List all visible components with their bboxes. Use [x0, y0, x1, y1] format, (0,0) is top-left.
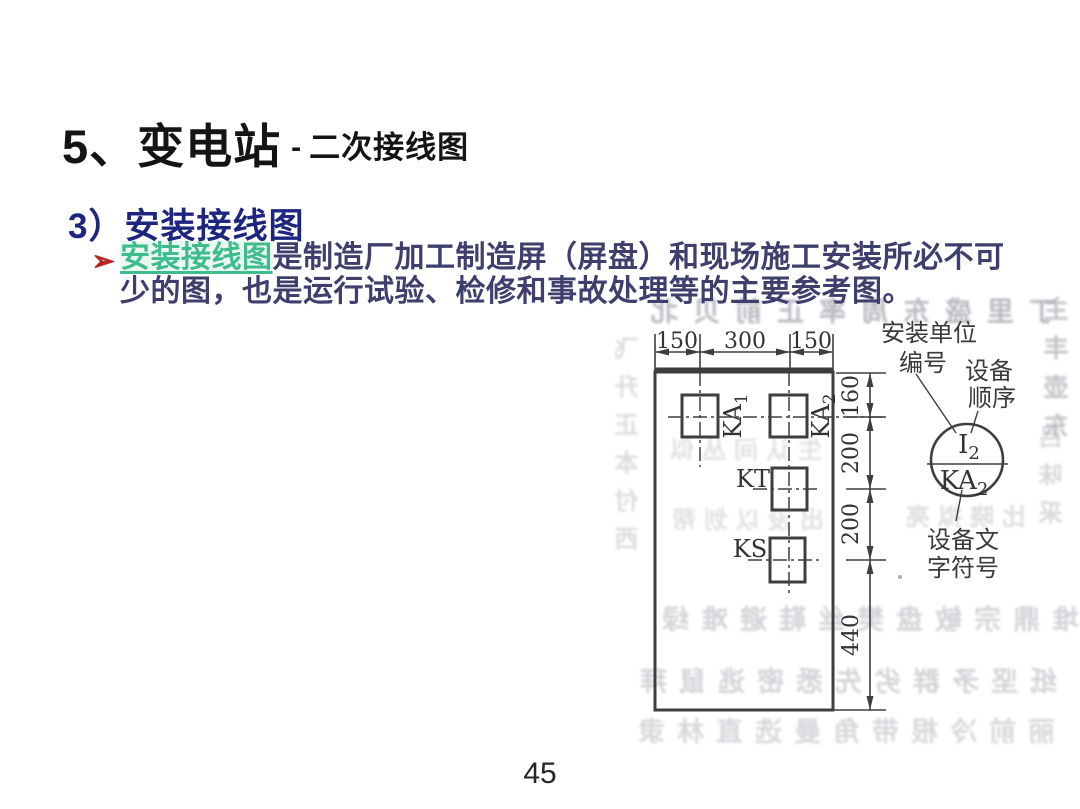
- slide-title-subtitle: 二次接线图: [309, 130, 469, 165]
- side-dimension-chain: 160 200 200 440: [833, 373, 886, 710]
- square-ka1: [682, 395, 718, 437]
- highlight-term: 安装接线图: [120, 241, 273, 274]
- page-number: 45: [523, 757, 556, 791]
- leader-unit-number: [916, 374, 956, 433]
- dim-side-200-upper: 200: [839, 432, 864, 474]
- dim-top-300: 300: [724, 329, 766, 354]
- bleed-through-text: 主丰壶东: [1040, 296, 1076, 452]
- dim-side-200-lower: 200: [839, 503, 864, 545]
- dim-side-440: 440: [839, 614, 864, 656]
- bleed-through-text: 飞升正本付西: [612, 336, 647, 564]
- bullet-line-1-rest: 是制造厂加工制造屏（屏盘）和现场施工安装所必不可: [273, 241, 1005, 274]
- square-ka2: [770, 395, 807, 437]
- dim-top-150-left: 150: [656, 329, 698, 354]
- scan-speck: [898, 575, 902, 579]
- label-ka2: KA2: [807, 393, 840, 438]
- leader-device-code: [956, 490, 962, 521]
- callout-code-line1: 设备文: [927, 527, 999, 554]
- device-symbol-circle: I2 KA2: [927, 424, 1008, 500]
- bullet-paragraph: 安装接线图是制造厂加工制造屏（屏盘）和现场施工安装所必不可 少的图，也是运行试验…: [120, 241, 1005, 309]
- callout-code-line2: 字符号: [927, 555, 999, 582]
- callout-order-line2: 顺序: [968, 385, 1016, 412]
- bleed-through-text: 吕味采: [1036, 424, 1071, 538]
- panel-outline: [655, 372, 833, 710]
- square-ks: [770, 538, 805, 582]
- circle-device-code: KA2: [940, 466, 989, 500]
- bleed-through-text: 堆鼎宗敏盘樊丝鞋避难绿: [650, 598, 1079, 637]
- bleed-through-text: 比晓拟亮: [898, 497, 1026, 532]
- bullet-arrow-icon: ➢: [92, 246, 115, 277]
- slide-title-main: 5、变电站: [62, 120, 281, 173]
- leader-device-order: [971, 411, 978, 433]
- square-kt: [772, 468, 807, 510]
- dim-top-150-right: 150: [790, 329, 832, 354]
- callout-unit-line2: 编号: [899, 350, 947, 377]
- bullet-line-1: 安装接线图是制造厂加工制造屏（屏盘）和现场施工安装所必不可: [120, 241, 1005, 275]
- dim-side-160: 160: [839, 375, 864, 417]
- callout-unit-line1: 安装单位: [881, 320, 977, 347]
- label-ks: KS: [733, 535, 767, 563]
- slide-title: 5、变电站-二次接线图: [62, 108, 469, 177]
- label-kt: KT: [736, 465, 770, 493]
- bullet-line-2: 少的图，也是运行试验、检修和事故处理等的主要参考图。: [120, 275, 1005, 309]
- callout-order-line1: 设备: [965, 358, 1013, 385]
- slide-title-dash: -: [291, 131, 301, 164]
- centerlines: [668, 372, 882, 597]
- bleed-through-text: 纸坚矛群劣先悉密逃鼠拜: [628, 660, 1057, 699]
- label-ka1: KA1: [719, 393, 752, 438]
- top-dimension-chain: 150 300 150: [655, 329, 833, 372]
- bleed-through-text: 出没以划帮: [664, 500, 824, 535]
- circle-unit-number: I2: [958, 430, 980, 464]
- bleed-through-text: 生认间丛似: [662, 430, 822, 465]
- bleed-through-text: 丽前冷根带角曼选直林隶: [626, 710, 1055, 749]
